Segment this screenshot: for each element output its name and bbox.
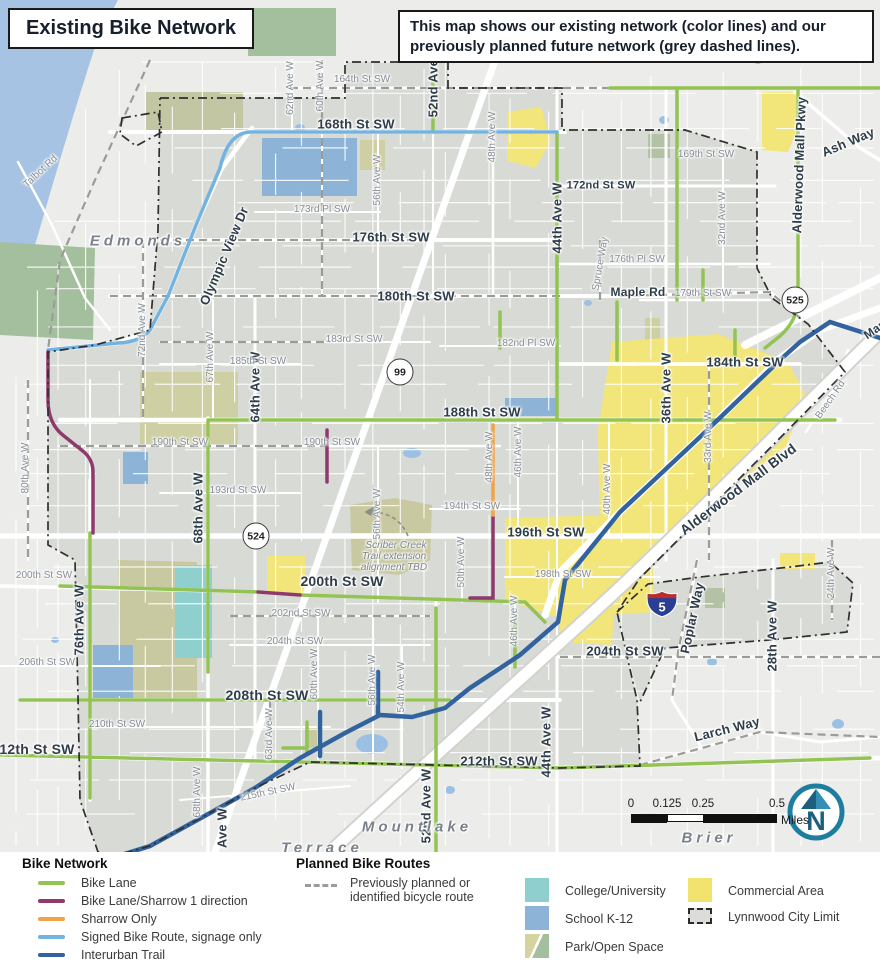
scale-tick-label: 0.25 <box>692 798 714 810</box>
scale-bar-segment <box>631 814 667 823</box>
legend-item-bike-lane: Bike Lane <box>38 876 137 890</box>
commercial-area-swatch <box>688 878 712 902</box>
signed-route-swatch <box>38 935 65 940</box>
legend-item-sharrow-1dir: Bike Lane/Sharrow 1 direction <box>38 894 248 908</box>
map-canvas: 168th St SW176th St SW180th St SW184th S… <box>0 0 880 855</box>
legend-item-school: School K-12 <box>565 912 633 926</box>
park-open-space-swatch <box>525 934 549 958</box>
scale-bar: 00.1250.250.5 Miles <box>600 770 830 840</box>
legend-item-park: Park/Open Space <box>565 940 664 954</box>
college-university-swatch <box>525 878 549 902</box>
map-title: Existing Bike Network <box>8 8 254 49</box>
interurban-trail-swatch <box>38 953 65 958</box>
scale-bar-segment <box>703 814 777 823</box>
school-k12-swatch <box>525 906 549 930</box>
planned-route-swatch <box>305 884 337 887</box>
legend-planned-heading: Planned Bike Routes <box>296 856 430 871</box>
legend-item-commercial: Commercial Area <box>728 884 824 898</box>
legend: Bike Network Bike Lane Bike Lane/Sharrow… <box>0 852 880 967</box>
legend-item-city-limit: Lynnwood City Limit <box>728 910 839 924</box>
scale-bar-segment <box>667 814 705 822</box>
map-artwork <box>0 0 880 855</box>
sharrow-1dir-swatch <box>38 899 65 904</box>
legend-item-sharrow-only: Sharrow Only <box>38 912 157 926</box>
scale-tick-label: 0.5 <box>769 798 785 810</box>
legend-item-signed-route: Signed Bike Route, signage only <box>38 930 262 944</box>
legend-item-planned-route: Previously planned or identified bicycle… <box>350 876 474 905</box>
bike-lane-swatch <box>38 881 65 886</box>
city-limit-swatch <box>688 908 712 924</box>
scale-unit-label: Miles <box>781 813 809 827</box>
legend-item-interurban-trail: Interurban Trail <box>38 948 165 962</box>
legend-bike-network-heading: Bike Network <box>22 856 108 871</box>
scale-tick-label: 0 <box>628 798 634 810</box>
sharrow-only-swatch <box>38 917 65 922</box>
legend-item-college: College/University <box>565 884 666 898</box>
scale-tick-label: 0.125 <box>653 798 682 810</box>
map-description: This map shows our existing network (col… <box>398 10 874 63</box>
